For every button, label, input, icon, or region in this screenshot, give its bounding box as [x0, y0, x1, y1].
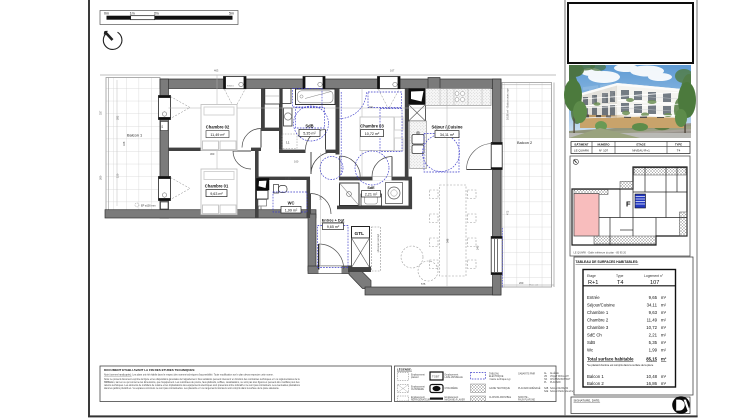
svg-text:SALLE D'EAU (douche): SALLE D'EAU (douche): [550, 390, 574, 393]
svg-text:34,11: 34,11: [647, 303, 658, 308]
svg-text:N° 107: N° 107: [599, 148, 609, 152]
svg-text:Emplacement: Emplacement: [411, 386, 425, 389]
svg-text:LE QUARK: LE QUARK: [574, 148, 589, 152]
svg-text:9,63: 9,63: [649, 310, 658, 315]
svg-text:Etage: Etage: [587, 274, 596, 278]
svg-text:ETAGE: ETAGE: [636, 142, 645, 146]
svg-text:Nota: Le présent document expr: Nota: Le présent document exprime la fig…: [104, 378, 300, 381]
svg-text:16,86: 16,86: [646, 381, 657, 386]
svg-text:1,99 m²: 1,99 m²: [285, 208, 298, 212]
svg-text:1m: 1m: [130, 12, 135, 16]
svg-text:LÉGENDE:: LÉGENDE:: [397, 366, 412, 371]
svg-text:TYPE: TYPE: [675, 142, 682, 146]
svg-text:LAVE-VAISSELLE: LAVE-VAISSELLE: [445, 376, 464, 379]
svg-text:SdB: SdB: [587, 340, 595, 345]
svg-text:SIGNATURE, DATE:: SIGNATURE, DATE:: [574, 398, 601, 402]
svg-text:VOLET ROULANT: VOLET ROULANT: [550, 375, 569, 378]
svg-text:HA: HA: [544, 378, 548, 381]
svg-text:328: 328: [122, 141, 126, 146]
svg-text:Pluie +tol: Pluie +tol: [529, 284, 539, 287]
svg-text:2,21 m²: 2,21 m²: [365, 193, 378, 197]
svg-text:337: 337: [99, 110, 103, 115]
svg-text:EP ø100 mm: EP ø100 mm: [141, 204, 156, 207]
svg-text:*Le placard d'entrée est compr: *Le placard d'entrée est compris dans la…: [587, 364, 654, 367]
svg-text:472: 472: [506, 210, 510, 215]
svg-text:dans les jardins privatifs et: dans les jardins privatifs et / ou espac…: [104, 387, 280, 390]
svg-text:Emplacement: Emplacement: [411, 396, 425, 399]
svg-text:PLACARD: PLACARD: [550, 381, 561, 384]
svg-text:5,35: 5,35: [649, 340, 658, 345]
svg-text:CHÂSSIS BATTANT: CHÂSSIS BATTANT: [550, 378, 571, 381]
svg-text:575: 575: [421, 282, 426, 286]
svg-text:ALLÈGE: ALLÈGE: [550, 372, 559, 375]
svg-text:T4: T4: [677, 148, 681, 152]
svg-text:9,63 m²: 9,63 m²: [210, 192, 223, 196]
svg-text:245: 245: [476, 245, 480, 250]
svg-text:150: 150: [116, 173, 120, 178]
svg-text:CUISINIÈRE: CUISINIÈRE: [411, 388, 424, 391]
svg-text:CHAUDIÈRE: CHAUDIÈRE: [445, 387, 459, 390]
svg-text:16,86 m² - Balcon avec vue: 16,86 m² - Balcon avec vue: [506, 88, 510, 120]
svg-text:m²: m²: [661, 303, 667, 308]
svg-text:Chambre 2: Chambre 2: [587, 318, 609, 323]
svg-text:réalisation, tant en ce qui co: réalisation, tant en ce qui concerne les…: [104, 381, 300, 384]
svg-text:GABARITS PMR: GABARITS PMR: [518, 373, 535, 376]
svg-text:0m: 0m: [104, 12, 109, 16]
svg-text:260: 260: [99, 175, 103, 180]
svg-text:T4: T4: [617, 280, 624, 286]
svg-text:SdE: SdE: [544, 391, 549, 393]
svg-text:1150: 1150: [285, 177, 291, 181]
svg-text:85,15: 85,15: [646, 357, 657, 362]
svg-text:m²: m²: [661, 318, 667, 323]
svg-text:GAINE TECHNIQUE: GAINE TECHNIQUE: [489, 387, 510, 390]
svg-text:Chambre 1: Chambre 1: [587, 310, 609, 315]
svg-text:Logement n°: Logement n°: [644, 274, 664, 278]
svg-text:WC: WC: [288, 201, 295, 206]
svg-text:LL: LL: [286, 141, 290, 145]
svg-text:Type: Type: [616, 274, 623, 278]
svg-text:9,65 m²: 9,65 m²: [327, 225, 340, 229]
svg-text:DOCUMENT ETABLI AVANT LA FIN D: DOCUMENT ETABLI AVANT LA FIN DES ETUDES …: [104, 368, 195, 372]
svg-text:m²: m²: [661, 357, 667, 362]
svg-text:Entrée: Entrée: [587, 295, 600, 300]
svg-text:m²: m²: [661, 333, 667, 338]
svg-text:Entrée + Dgt: Entrée + Dgt: [322, 218, 345, 222]
svg-text:Chambre 03: Chambre 03: [360, 124, 384, 129]
svg-text:LE QUARK - Dalle inférieure du: LE QUARK - Dalle inférieure du plan - 85…: [574, 252, 627, 255]
svg-text:9,65: 9,65: [649, 295, 658, 300]
svg-text:F: F: [626, 200, 631, 209]
svg-text:SOFFITE -: SOFFITE -: [518, 397, 529, 399]
svg-text:ÉLECTRIQUE: ÉLECTRIQUE: [489, 375, 504, 378]
svg-text:Balcon 2: Balcon 2: [587, 381, 604, 386]
svg-text:10,48: 10,48: [646, 374, 657, 379]
svg-text:/ Gaine technique Lgt: / Gaine technique Lgt: [489, 378, 511, 381]
svg-text:Emplacement: Emplacement: [445, 374, 459, 377]
svg-text:167: 167: [390, 69, 395, 73]
svg-text:2,21: 2,21: [649, 333, 658, 338]
svg-text:Balcon 1: Balcon 1: [127, 133, 142, 138]
svg-text:300: 300: [210, 152, 215, 156]
svg-text:90/215: 90/215: [227, 86, 234, 88]
svg-text:SdB: SdB: [305, 123, 313, 128]
svg-text:R+1: R+1: [588, 280, 598, 286]
svg-text:placard: placard: [411, 376, 419, 379]
svg-text:Séjour/Cuisine: Séjour/Cuisine: [587, 303, 616, 308]
svg-text:m²: m²: [661, 348, 667, 353]
svg-text:Balcon 2: Balcon 2: [517, 140, 532, 145]
svg-text:placard aménagé: placard aménagé: [377, 234, 380, 253]
svg-text:200: 200: [519, 281, 524, 285]
svg-text:m²: m²: [661, 295, 667, 300]
svg-text:TABLEAU: TABLEAU: [489, 373, 499, 376]
svg-text:raisons techniques. Les élémen: raisons techniques. Les éléments de mobi…: [104, 384, 301, 387]
svg-text:TR: TR: [582, 76, 621, 111]
svg-text:TGBT: TGBT: [432, 375, 440, 379]
svg-text:Emplacement: Emplacement: [445, 396, 459, 399]
svg-text:282: 282: [116, 115, 120, 120]
svg-text:SdE Ch: SdE Ch: [587, 333, 602, 338]
svg-text:m²: m²: [661, 340, 667, 345]
svg-text:m²: m²: [661, 325, 667, 330]
svg-text:Note (normes handicapés): Les: Note (normes handicapés): Les plans ont …: [104, 373, 274, 376]
svg-text:m²: m²: [661, 374, 667, 379]
svg-text:Emplacement: Emplacement: [411, 374, 425, 377]
svg-text:SdB: SdB: [544, 388, 549, 390]
svg-text:1,99: 1,99: [649, 348, 658, 353]
svg-text:10,72 m²: 10,72 m²: [365, 132, 380, 136]
svg-text:Chambre 3: Chambre 3: [587, 325, 609, 330]
svg-text:11,49: 11,49: [647, 318, 658, 323]
svg-text:Chambre 01: Chambre 01: [205, 184, 229, 189]
svg-text:NIVEAU R+1: NIVEAU R+1: [632, 148, 650, 152]
svg-text:Balcon 1: Balcon 1: [587, 374, 604, 379]
svg-text:Chambre 02: Chambre 02: [206, 125, 230, 130]
svg-text:SdE: SdE: [367, 186, 375, 190]
svg-text:11,49 m²: 11,49 m²: [210, 133, 225, 137]
svg-text:160: 160: [294, 160, 299, 164]
svg-text:346: 346: [446, 238, 450, 243]
svg-text:FAUX PLAFOND: FAUX PLAFOND: [518, 399, 536, 402]
svg-text:MACHINE À LAVER: MACHINE À LAVER: [445, 399, 466, 402]
svg-text:240: 240: [369, 105, 374, 109]
svg-text:SALLE DE BAINS: SALLE DE BAINS: [550, 387, 569, 390]
svg-text:107: 107: [650, 280, 659, 286]
svg-text:m²: m²: [661, 381, 667, 386]
svg-text:m²: m²: [661, 310, 667, 315]
svg-text:Total surface habitable: Total surface habitable: [587, 357, 634, 362]
svg-text:463: 463: [214, 69, 219, 73]
svg-text:Wc: Wc: [587, 348, 594, 353]
svg-text:246: 246: [319, 195, 323, 200]
svg-text:RÉFRIGÉRATEUR: RÉFRIGÉRATEUR: [411, 399, 430, 402]
svg-text:5m: 5m: [229, 12, 234, 16]
svg-text:GTL: GTL: [355, 231, 365, 237]
svg-text:TABLEAU DE SURFACES HABITABLES: TABLEAU DE SURFACES HABITABLES:: [576, 260, 639, 264]
svg-text:CLOISON AMOVIBLE: CLOISON AMOVIBLE: [489, 396, 512, 399]
svg-text:PLACARD AMÉNAGÉ: PLACARD AMÉNAGÉ: [518, 387, 541, 390]
svg-text:34,11 m²: 34,11 m²: [440, 133, 455, 137]
svg-text:2m: 2m: [154, 12, 159, 16]
svg-text:5,35 m²: 5,35 m²: [303, 132, 316, 136]
svg-text:NUMERO: NUMERO: [598, 142, 610, 146]
svg-text:10,72: 10,72: [646, 325, 657, 330]
svg-text:VR: VR: [544, 376, 548, 378]
